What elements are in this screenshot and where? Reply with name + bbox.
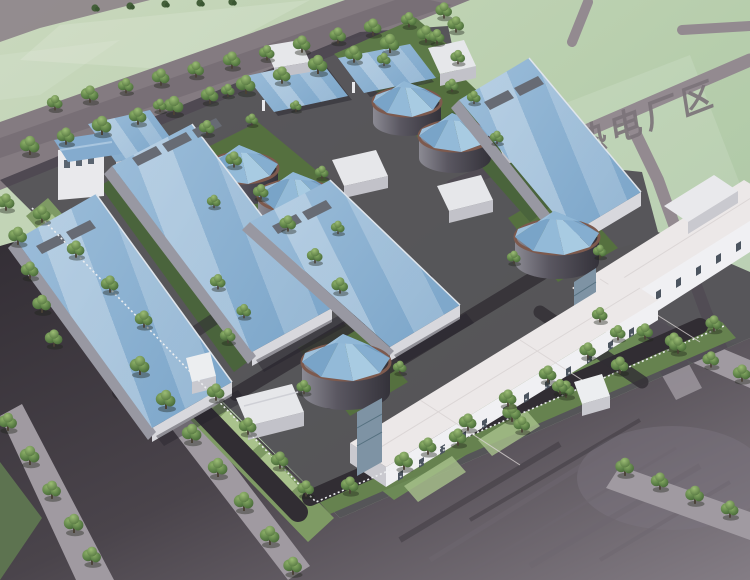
- aerial-rendering-canvas: 热电厂区: [0, 0, 750, 580]
- site-plan-svg: 热电厂区: [0, 0, 750, 580]
